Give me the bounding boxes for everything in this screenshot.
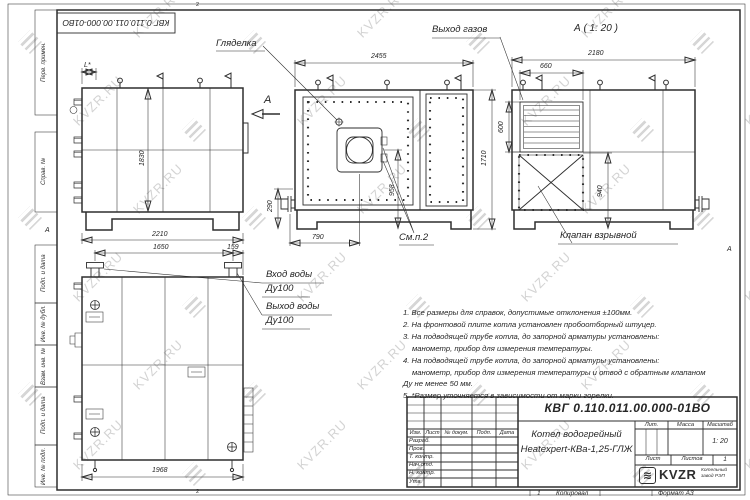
col-header-doc: № докум.: [441, 431, 472, 437]
note-line: Ду не менее 50 мм.: [403, 378, 737, 390]
row-utv: Утв.: [409, 480, 422, 486]
gas-outlet-label: Выход газов: [432, 25, 487, 35]
dim-1710: 1710: [481, 150, 488, 166]
dim-290: 290: [267, 200, 274, 212]
header-scale: Масштаб: [703, 423, 737, 429]
note-line: манометр, прибор для измерения температу…: [403, 367, 737, 379]
strip-label-perv-primen: Перв. примен.: [41, 42, 47, 82]
water-inlet-label: Вход воды: [266, 270, 312, 280]
kvzr-logo-text: KVZR: [659, 467, 696, 482]
strip-label-podp-data-2: Подп. и дата: [41, 396, 47, 434]
format-label: Формат А3: [658, 491, 694, 498]
product-name-line1: Котел водогрейный: [518, 430, 635, 440]
sheets-value: 1: [713, 457, 737, 464]
strip-label-inv-dubl: Инв. № дубл.: [41, 305, 47, 342]
top-stamp-doc-number: КВГ 0.110.011.00.000-01ВО: [57, 13, 175, 33]
dim-790: 790: [312, 234, 324, 241]
dim-940: 940: [597, 185, 604, 197]
dim-600: 600: [498, 121, 505, 133]
strip-label-inv-podl: Инв. № подл.: [41, 448, 47, 485]
strip-label-podp-data-1: Подп. и дата: [41, 254, 47, 292]
view-a-scale-label: А ( 1: 20 ): [574, 24, 618, 34]
dim-1830: 1830: [139, 150, 146, 166]
row-razrab: Разраб.: [409, 439, 430, 445]
zone-mark-bottom: 2: [196, 490, 199, 496]
note-line: манометр, прибор для измерения температу…: [403, 343, 737, 355]
sight-glass-label: Гляделка: [216, 39, 257, 49]
see-item-label: См.п.2: [399, 233, 428, 243]
dim-1968: 1968: [152, 467, 168, 474]
explosion-valve-label: Клапан взрывной: [560, 231, 637, 241]
col-header-data: Дата: [496, 431, 518, 437]
copy-number: 1: [537, 491, 541, 498]
dim-660: 660: [540, 63, 552, 70]
text-layer: КВГ 0.110.011.00.000-01ВО 2 2 А А Перв. …: [0, 0, 750, 500]
notes-block: 1. Все размеры для справок, допустимые о…: [403, 307, 737, 402]
dim-2210: 2210: [152, 231, 168, 238]
kvzr-logo-icon: ≋: [639, 467, 656, 484]
strip-label-sprav: Справ. №: [41, 158, 47, 185]
sheet-label: Лист: [635, 457, 671, 463]
water-outlet-dn-label: Ду100: [266, 316, 293, 326]
sheets-label: Листов: [671, 457, 713, 463]
header-mass: Масса: [668, 423, 703, 429]
water-outlet-label: Выход воды: [266, 302, 319, 312]
copied-label: Копировал: [556, 491, 588, 498]
dim-1650: 1650: [153, 244, 169, 251]
row-prov: Пров.: [409, 447, 424, 453]
fold-mark-right: А: [727, 246, 732, 253]
dim-159: 159: [227, 244, 239, 251]
note-line: 2. На фронтовой плите котла установлен п…: [403, 319, 737, 331]
note-line: 1. Все размеры для справок, допустимые о…: [403, 307, 737, 319]
col-header-izm: Изм.: [407, 431, 424, 437]
header-lit: Лит.: [635, 423, 668, 429]
product-name-line2: Heatexpert-КВа-1,25-ГЛЖ: [518, 445, 635, 455]
zone-mark-top: 2: [196, 3, 199, 9]
row-nach-otd: Нач.отд.: [409, 463, 433, 469]
dim-958: 958: [389, 184, 396, 196]
scale-value: 1: 20: [703, 438, 737, 445]
col-header-list: Лист: [424, 431, 441, 437]
dim-2180: 2180: [588, 50, 604, 57]
fold-mark-left: А: [45, 227, 50, 234]
row-t-kontr: Т. контр.: [409, 455, 434, 461]
section-arrow-label: А: [264, 95, 271, 106]
note-line: 4. На подводящей трубе котла, до запорно…: [403, 355, 737, 367]
titleblock-doc-number: КВГ 0.110.011.00.000-01ВО: [518, 402, 737, 414]
row-n-kontr: Н. контр.: [409, 471, 435, 477]
strip-label-vzam-inv: Взам. инв. №: [41, 348, 47, 385]
water-inlet-dn-label: Ду100: [266, 284, 293, 294]
note-line: 3. На подводящей трубе котла, до запорно…: [403, 331, 737, 343]
drawing-sheet: KVZR.RUKVZR.RUKVZR.RUKVZR.RUKVZR.RUKVZR.…: [0, 0, 750, 500]
company-line2: завод РЭП: [701, 474, 727, 480]
dim-l-star: L*: [84, 62, 91, 69]
col-header-podp: Подп.: [472, 431, 496, 437]
company-name: Котельный завод РЭП: [701, 468, 727, 480]
dim-2455: 2455: [371, 53, 387, 60]
